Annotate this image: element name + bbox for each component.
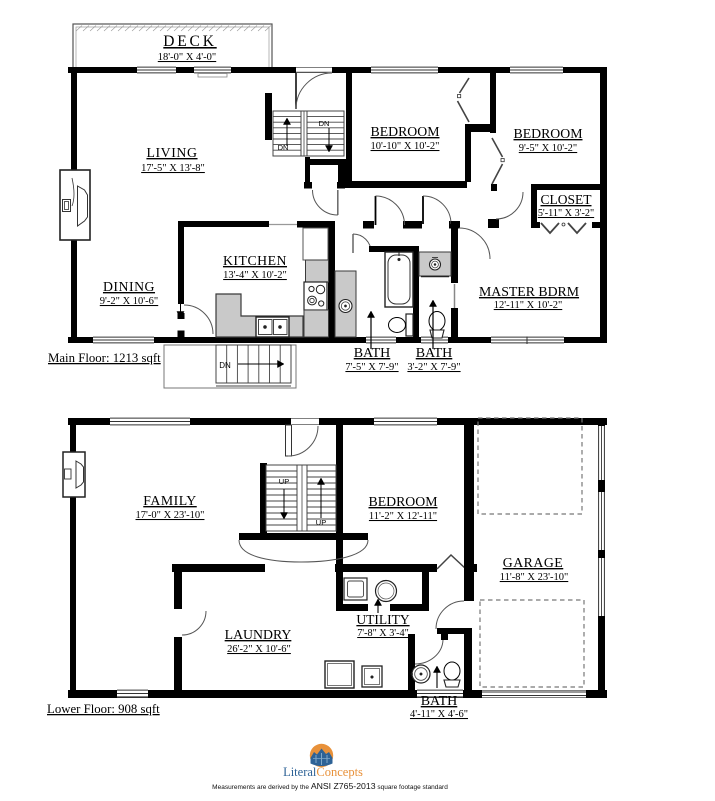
svg-text:UP: UP: [316, 518, 326, 527]
svg-text:CLOSET: CLOSET: [540, 192, 592, 207]
svg-text:18'-0" X 4'-0": 18'-0" X 4'-0": [158, 52, 216, 63]
svg-text:5'-11" X 3'-2": 5'-11" X 3'-2": [538, 208, 594, 219]
svg-text:7'-5" X 7'-9": 7'-5" X 7'-9": [345, 362, 398, 373]
svg-text:12'-11" X 10'-2": 12'-11" X 10'-2": [494, 300, 563, 311]
svg-text:7'-8" X 3'-4": 7'-8" X 3'-4": [357, 628, 409, 639]
svg-text:DN: DN: [278, 143, 289, 152]
svg-text:Main Floor: 1213 sqft: Main Floor: 1213 sqft: [48, 351, 161, 365]
svg-text:MASTER BDRM: MASTER BDRM: [479, 284, 579, 299]
svg-text:BEDROOM: BEDROOM: [514, 126, 583, 141]
svg-text:26'-2" X 10'-6": 26'-2" X 10'-6": [227, 644, 291, 655]
svg-text:LAUNDRY: LAUNDRY: [225, 627, 292, 642]
svg-text:11'-2" X 12'-11": 11'-2" X 12'-11": [369, 511, 437, 522]
svg-text:DN: DN: [219, 361, 231, 370]
svg-text:3'-2" X 7'-9": 3'-2" X 7'-9": [407, 362, 460, 373]
svg-text:KITCHEN: KITCHEN: [223, 253, 287, 268]
svg-text:LIVING: LIVING: [146, 145, 197, 160]
svg-text:9'-2" X 10'-6": 9'-2" X 10'-6": [100, 296, 158, 307]
svg-text:17'-0" X 23'-10": 17'-0" X 23'-10": [136, 510, 205, 521]
svg-text:LiteralConcepts: LiteralConcepts: [283, 765, 363, 779]
svg-text:FAMILY: FAMILY: [143, 493, 197, 508]
svg-text:DN: DN: [319, 119, 330, 128]
svg-text:UP: UP: [279, 477, 289, 486]
svg-text:GARAGE: GARAGE: [503, 555, 564, 570]
svg-text:9'-5" X 10'-2": 9'-5" X 10'-2": [519, 143, 577, 154]
svg-text:11'-8" X 23'-10": 11'-8" X 23'-10": [500, 572, 569, 583]
svg-text:13'-4" X 10'-2": 13'-4" X 10'-2": [223, 270, 287, 281]
svg-text:17'-5" X 13'-8": 17'-5" X 13'-8": [141, 163, 205, 174]
svg-text:DECK: DECK: [163, 33, 216, 50]
svg-text:BATH: BATH: [354, 346, 391, 361]
svg-text:10'-10" X 10'-2": 10'-10" X 10'-2": [371, 141, 440, 152]
svg-text:4'-11" X 4'-6": 4'-11" X 4'-6": [410, 709, 468, 720]
svg-text:UTILITY: UTILITY: [356, 612, 409, 627]
svg-text:DINING: DINING: [103, 279, 155, 294]
svg-text:BEDROOM: BEDROOM: [371, 124, 440, 139]
svg-text:BEDROOM: BEDROOM: [369, 494, 438, 509]
svg-text:BATH: BATH: [421, 694, 458, 709]
svg-text:BATH: BATH: [416, 346, 453, 361]
svg-text:Lower Floor: 908 sqft: Lower Floor: 908 sqft: [47, 702, 160, 716]
